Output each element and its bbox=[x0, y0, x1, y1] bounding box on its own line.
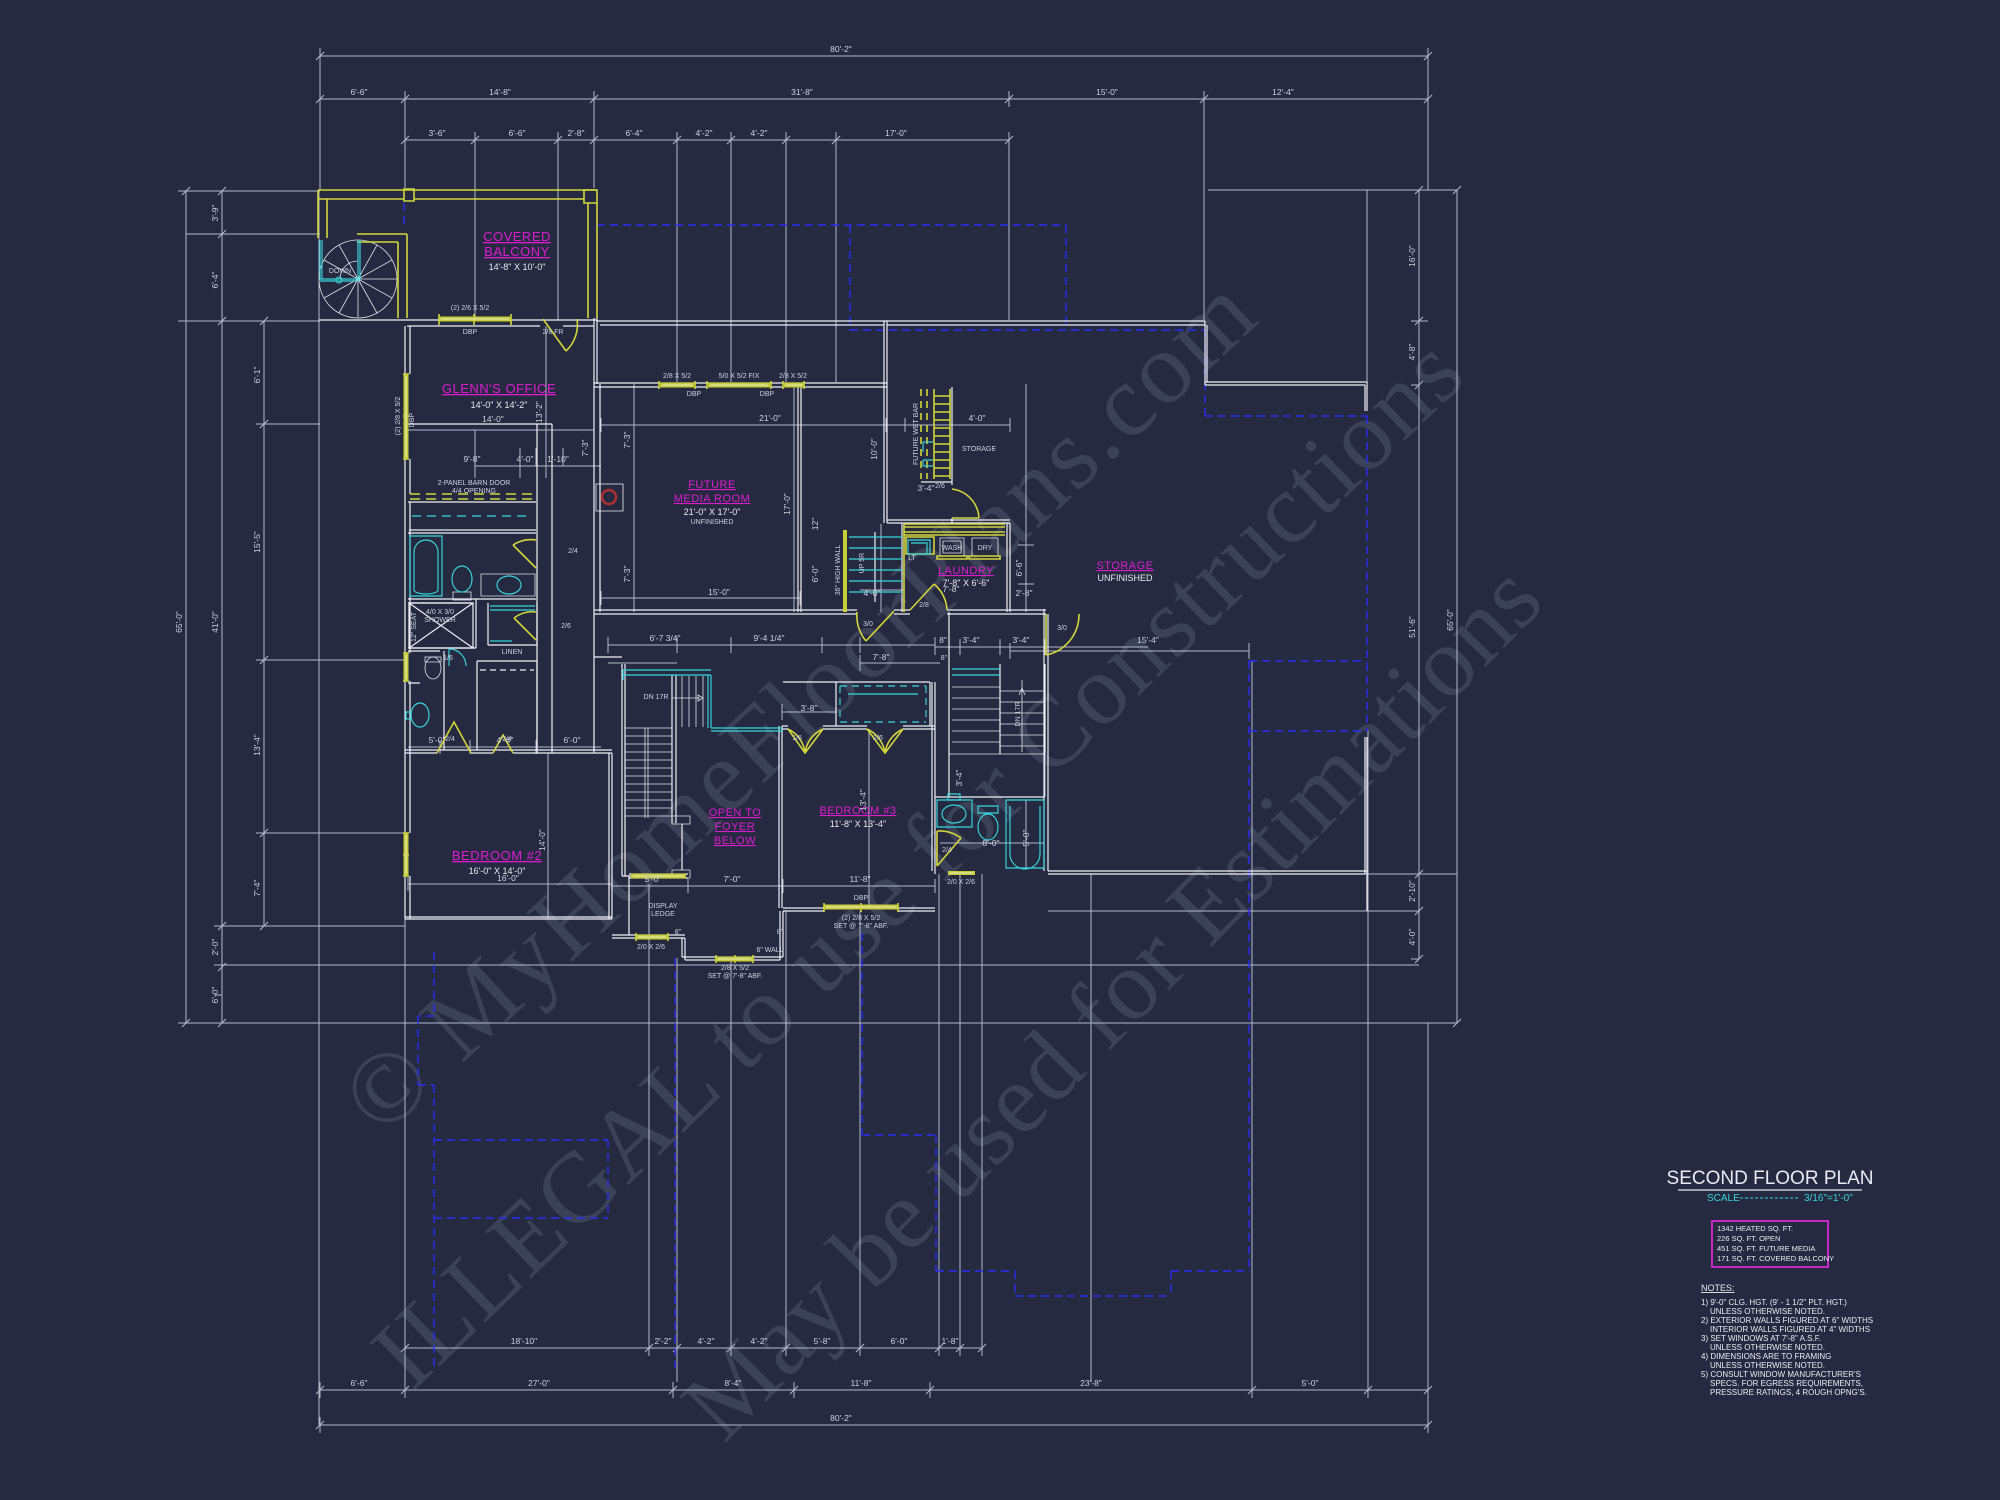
svg-text:3'-4": 3'-4" bbox=[963, 635, 980, 645]
svg-text:6'-0": 6'-0" bbox=[810, 566, 820, 583]
svg-text:6'-0": 6'-0" bbox=[564, 735, 581, 745]
svg-text:8": 8" bbox=[675, 929, 682, 936]
svg-text:8": 8" bbox=[941, 655, 948, 662]
svg-text:65'-0": 65'-0" bbox=[1445, 609, 1455, 631]
svg-text:SCALE: SCALE bbox=[1707, 1193, 1740, 1204]
svg-text:9'-4 1/4": 9'-4 1/4" bbox=[753, 633, 784, 643]
svg-text:5'-0": 5'-0" bbox=[429, 735, 446, 745]
svg-text:2/4: 2/4 bbox=[942, 847, 952, 854]
svg-text:8'-4": 8'-4" bbox=[725, 1378, 742, 1388]
svg-text:DBP: DBP bbox=[760, 391, 775, 398]
svg-text:3/16"=1'-0": 3/16"=1'-0" bbox=[1804, 1193, 1853, 1204]
svg-text:LEDGE: LEDGE bbox=[651, 911, 675, 918]
svg-text:SECOND FLOOR PLAN: SECOND FLOOR PLAN bbox=[1667, 1168, 1874, 1189]
svg-text:1/6: 1/6 bbox=[443, 655, 453, 662]
svg-text:2'-8": 2'-8" bbox=[568, 128, 585, 138]
svg-text:8": 8" bbox=[939, 635, 947, 645]
svg-text:SET @ 7'-8" ABF.: SET @ 7'-8" ABF. bbox=[834, 923, 889, 930]
svg-text:FUTURE WET BAR: FUTURE WET BAR bbox=[913, 403, 920, 465]
svg-text:DRY: DRY bbox=[978, 545, 993, 552]
svg-text:171 SQ. FT. COVERED BALCONY: 171 SQ. FT. COVERED BALCONY bbox=[1717, 1254, 1834, 1263]
svg-text:31'-8": 31'-8" bbox=[791, 87, 813, 97]
svg-text:5'-0": 5'-0" bbox=[1302, 1378, 1319, 1388]
svg-text:2'-2": 2'-2" bbox=[655, 1336, 672, 1346]
svg-text:5'-8": 5'-8" bbox=[814, 1336, 831, 1346]
svg-text:3'-9": 3'-9" bbox=[210, 205, 220, 222]
svg-text:16'-0": 16'-0" bbox=[1407, 245, 1417, 267]
svg-text:6" WALL: 6" WALL bbox=[756, 947, 783, 954]
svg-text:6'-7 3/4": 6'-7 3/4" bbox=[649, 633, 680, 643]
svg-text:UNLESS OTHERWISE NOTED.: UNLESS OTHERWISE NOTED. bbox=[1710, 1361, 1825, 1370]
svg-text:3'-4": 3'-4" bbox=[1013, 635, 1030, 645]
svg-text:6'-0": 6'-0" bbox=[891, 1336, 908, 1346]
svg-text:1342 HEATED SQ. FT.: 1342 HEATED SQ. FT. bbox=[1717, 1224, 1793, 1233]
svg-text:(2) 2/8 X 5/2: (2) 2/8 X 5/2 bbox=[395, 397, 402, 436]
svg-text:DBP: DBP bbox=[409, 412, 416, 427]
svg-text:LT: LT bbox=[908, 555, 916, 562]
svg-text:21'-0": 21'-0" bbox=[759, 413, 781, 423]
svg-text:15'-0": 15'-0" bbox=[1096, 87, 1118, 97]
svg-text:6'-4": 6'-4" bbox=[210, 272, 220, 289]
svg-text:8": 8" bbox=[777, 929, 784, 936]
svg-text:36" HIGH WALL: 36" HIGH WALL bbox=[835, 545, 842, 596]
svg-text:6'-0": 6'-0" bbox=[210, 987, 220, 1004]
svg-text:80'-2": 80'-2" bbox=[830, 44, 852, 54]
svg-text:(2) 2/6 X 5/2: (2) 2/6 X 5/2 bbox=[451, 305, 490, 312]
svg-text:2) EXTERIOR WALLS FIGURED AT: 2) EXTERIOR WALLS FIGURED AT 6" WIDTHS bbox=[1701, 1316, 1873, 1325]
svg-text:12'-4": 12'-4" bbox=[1272, 87, 1294, 97]
svg-text:DISPLAY: DISPLAY bbox=[648, 903, 677, 910]
svg-text:NOTES:: NOTES: bbox=[1701, 1283, 1735, 1293]
svg-text:12" SEAT: 12" SEAT bbox=[411, 611, 418, 642]
svg-text:2/0 X 2/6: 2/0 X 2/6 bbox=[947, 879, 975, 886]
svg-text:2/0 X 2/6: 2/0 X 2/6 bbox=[637, 944, 665, 951]
svg-text:4'-2": 4'-2" bbox=[698, 1336, 715, 1346]
svg-text:3'-4": 3'-4" bbox=[918, 483, 935, 493]
svg-text:UNLESS OTHERWISE NOTED.: UNLESS OTHERWISE NOTED. bbox=[1710, 1307, 1825, 1316]
svg-text:1) 9'-0" CLG. HGT. (9' - 1 1: 1) 9'-0" CLG. HGT. (9' - 1 1/2" PLT. HGT… bbox=[1701, 1298, 1847, 1307]
svg-text:2/6: 2/6 bbox=[561, 623, 571, 630]
svg-text:2/6: 2/6 bbox=[935, 483, 945, 490]
svg-text:2'-0": 2'-0" bbox=[210, 939, 220, 956]
svg-text:3/0: 3/0 bbox=[863, 621, 873, 628]
svg-text:UNLESS OTHERWISE NOTED.: UNLESS OTHERWISE NOTED. bbox=[1710, 1343, 1825, 1352]
svg-text:UNFINISHED: UNFINISHED bbox=[691, 519, 734, 526]
svg-text:FUTURE: FUTURE bbox=[688, 479, 736, 491]
svg-text:18'-10": 18'-10" bbox=[511, 1336, 537, 1346]
svg-text:2/4: 2/4 bbox=[502, 736, 512, 743]
svg-text:10'-0": 10'-0" bbox=[869, 438, 879, 460]
svg-text:11'-8" X 13'-4": 11'-8" X 13'-4" bbox=[830, 819, 886, 829]
svg-text:41'-0": 41'-0" bbox=[210, 611, 220, 633]
svg-text:7'-3": 7'-3" bbox=[580, 440, 590, 457]
svg-text:14'-8": 14'-8" bbox=[489, 87, 511, 97]
svg-text:1'-8": 1'-8" bbox=[942, 1336, 959, 1346]
svg-text:5'-0": 5'-0" bbox=[1021, 830, 1031, 847]
svg-text:5'-0": 5'-0" bbox=[645, 874, 662, 884]
svg-text:2/4: 2/4 bbox=[568, 548, 578, 555]
svg-text:DBP: DBP bbox=[463, 329, 478, 336]
svg-text:17'-0": 17'-0" bbox=[885, 128, 907, 138]
svg-text:DOWN: DOWN bbox=[329, 268, 351, 275]
svg-text:14'-0": 14'-0" bbox=[537, 829, 547, 851]
svg-text:2/8 FR: 2/8 FR bbox=[542, 329, 563, 336]
svg-text:16'-0": 16'-0" bbox=[497, 873, 519, 883]
svg-text:1'-10": 1'-10" bbox=[547, 454, 569, 464]
svg-text:2'-10": 2'-10" bbox=[1407, 880, 1417, 902]
svg-text:4'-0": 4'-0" bbox=[1407, 929, 1417, 946]
svg-text:2/4: 2/4 bbox=[445, 736, 455, 743]
svg-text:13'-2": 13'-2" bbox=[534, 401, 544, 423]
svg-text:4'-0": 4'-0" bbox=[969, 413, 986, 423]
svg-text:15'-5": 15'-5" bbox=[252, 531, 262, 553]
svg-text:UNFINISHED: UNFINISHED bbox=[1097, 573, 1153, 583]
svg-text:4'-2": 4'-2" bbox=[696, 128, 713, 138]
svg-text:PRESSURE RATINGS, 4 ROUGH OPNG: PRESSURE RATINGS, 4 ROUGH OPNG'S. bbox=[1710, 1388, 1867, 1397]
svg-text:GLENN'S OFFICE: GLENN'S OFFICE bbox=[442, 381, 556, 396]
svg-text:65'-0": 65'-0" bbox=[174, 611, 184, 633]
svg-text:2/6: 2/6 bbox=[873, 735, 883, 742]
svg-text:14'-0": 14'-0" bbox=[482, 414, 504, 424]
svg-text:21'-0" X 17'-0": 21'-0" X 17'-0" bbox=[684, 507, 741, 517]
svg-text:7'-0": 7'-0" bbox=[724, 874, 741, 884]
svg-text:3/0: 3/0 bbox=[1057, 625, 1067, 632]
svg-text:8'-0": 8'-0" bbox=[983, 838, 1000, 848]
svg-text:DN 17R: DN 17R bbox=[644, 694, 669, 701]
svg-text:LINEN: LINEN bbox=[502, 649, 523, 656]
svg-text:6'-6": 6'-6" bbox=[351, 1378, 368, 1388]
svg-text:4) DIMENSIONS ARE TO FRAMING: 4) DIMENSIONS ARE TO FRAMING bbox=[1701, 1352, 1831, 1361]
svg-text:2/8 X 5/2: 2/8 X 5/2 bbox=[779, 373, 807, 380]
svg-text:4'-8": 4'-8" bbox=[1407, 344, 1417, 361]
svg-text:6'-6": 6'-6" bbox=[1014, 560, 1024, 577]
svg-text:7'-3": 7'-3" bbox=[622, 432, 632, 449]
svg-text:5) CONSULT WINDOW MANUFACTURE: 5) CONSULT WINDOW MANUFACTURER'S bbox=[1701, 1370, 1861, 1379]
svg-text:80'-2": 80'-2" bbox=[830, 1413, 852, 1423]
svg-text:2/8 X 5/2: 2/8 X 5/2 bbox=[663, 373, 691, 380]
svg-text:7'-3": 7'-3" bbox=[622, 566, 632, 583]
svg-text:23'-8": 23'-8" bbox=[1080, 1378, 1102, 1388]
svg-text:UP 5R: UP 5R bbox=[859, 553, 866, 574]
svg-text:7'-4": 7'-4" bbox=[252, 880, 262, 897]
svg-text:2'-8": 2'-8" bbox=[1016, 588, 1033, 598]
svg-text:(2) 2/8 X 5/2: (2) 2/8 X 5/2 bbox=[842, 915, 881, 922]
svg-text:SHOWER: SHOWER bbox=[424, 617, 456, 624]
svg-text:11'-8": 11'-8" bbox=[849, 874, 870, 884]
svg-text:15'-0": 15'-0" bbox=[708, 587, 730, 597]
svg-text:4'-0": 4'-0" bbox=[864, 588, 881, 598]
svg-text:2-PANEL BARN DOOR: 2-PANEL BARN DOOR bbox=[438, 480, 511, 487]
svg-text:226 SQ. FT. OPEN: 226 SQ. FT. OPEN bbox=[1717, 1234, 1780, 1243]
svg-text:SET @ 7'-8" ABF.: SET @ 7'-8" ABF. bbox=[708, 973, 763, 980]
svg-text:4'-2": 4'-2" bbox=[751, 1336, 768, 1346]
svg-text:14'-8" X 10'-0": 14'-8" X 10'-0" bbox=[489, 262, 546, 272]
svg-text:SPECS. FOR EGRESS REQUIREMENTS: SPECS. FOR EGRESS REQUIREMENTS, bbox=[1710, 1379, 1863, 1388]
svg-text:FOYER: FOYER bbox=[715, 821, 755, 833]
svg-text:3'-8": 3'-8" bbox=[801, 703, 818, 713]
svg-text:6'-4": 6'-4" bbox=[626, 128, 643, 138]
svg-text:6'-6": 6'-6" bbox=[351, 87, 368, 97]
svg-text:9'-8": 9'-8" bbox=[464, 454, 481, 464]
svg-text:51'-6": 51'-6" bbox=[1407, 616, 1417, 638]
svg-text:7'-8": 7'-8" bbox=[873, 652, 890, 662]
svg-text:6'-6": 6'-6" bbox=[509, 128, 526, 138]
svg-text:3'-6": 3'-6" bbox=[429, 128, 446, 138]
svg-text:27'-0": 27'-0" bbox=[528, 1378, 550, 1388]
svg-text:LAUNDRY: LAUNDRY bbox=[938, 565, 994, 577]
svg-text:15'-4": 15'-4" bbox=[1137, 635, 1159, 645]
svg-text:COVERED: COVERED bbox=[483, 229, 551, 244]
svg-text:BALCONY: BALCONY bbox=[484, 244, 550, 259]
svg-text:4'-0": 4'-0" bbox=[517, 454, 534, 464]
svg-text:2/8: 2/8 bbox=[919, 602, 929, 609]
svg-text:5/0 X 5/2 FIX: 5/0 X 5/2 FIX bbox=[719, 373, 760, 380]
svg-text:INTERIOR WALLS FIGURED AT 4" W: INTERIOR WALLS FIGURED AT 4" WIDTHS bbox=[1710, 1325, 1870, 1334]
svg-text:11'-8": 11'-8" bbox=[850, 1378, 871, 1388]
svg-text:DN 17R: DN 17R bbox=[1015, 702, 1022, 727]
svg-text:WASH: WASH bbox=[942, 545, 963, 552]
svg-text:STORAGE: STORAGE bbox=[962, 446, 996, 453]
svg-text:1/6: 1/6 bbox=[792, 735, 802, 742]
svg-text:17'-0": 17'-0" bbox=[782, 493, 792, 515]
svg-text:DBP: DBP bbox=[854, 895, 869, 902]
svg-text:12": 12" bbox=[810, 518, 820, 530]
svg-text:STORAGE: STORAGE bbox=[1096, 560, 1153, 572]
svg-text:3) SET WINDOWS AT 7'-8" A.S.F: 3) SET WINDOWS AT 7'-8" A.S.F. bbox=[1701, 1334, 1821, 1343]
svg-text:14'-0" X 14'-2": 14'-0" X 14'-2" bbox=[471, 400, 528, 410]
svg-text:451 SQ. FT. FUTURE MEDIA: 451 SQ. FT. FUTURE MEDIA bbox=[1717, 1244, 1815, 1253]
svg-text:4'-2": 4'-2" bbox=[751, 128, 768, 138]
svg-text:BEDROOM #2: BEDROOM #2 bbox=[452, 848, 542, 863]
svg-text:4/0 X 3/0: 4/0 X 3/0 bbox=[426, 609, 454, 616]
svg-text:DBP: DBP bbox=[687, 391, 702, 398]
svg-text:MEDIA ROOM: MEDIA ROOM bbox=[674, 493, 751, 505]
svg-text:13'-4": 13'-4" bbox=[858, 789, 868, 811]
svg-text:2/8 X 5/2: 2/8 X 5/2 bbox=[721, 965, 749, 972]
svg-text:OPEN TO: OPEN TO bbox=[709, 807, 762, 819]
svg-text:13'-4": 13'-4" bbox=[252, 734, 262, 756]
svg-text:7'-8": 7'-8" bbox=[943, 584, 960, 594]
svg-text:3'-4": 3'-4" bbox=[954, 770, 964, 787]
svg-text:4/4 OPENING: 4/4 OPENING bbox=[452, 488, 496, 495]
svg-text:6'-1": 6'-1" bbox=[252, 367, 262, 384]
svg-text:BELOW: BELOW bbox=[714, 835, 756, 847]
